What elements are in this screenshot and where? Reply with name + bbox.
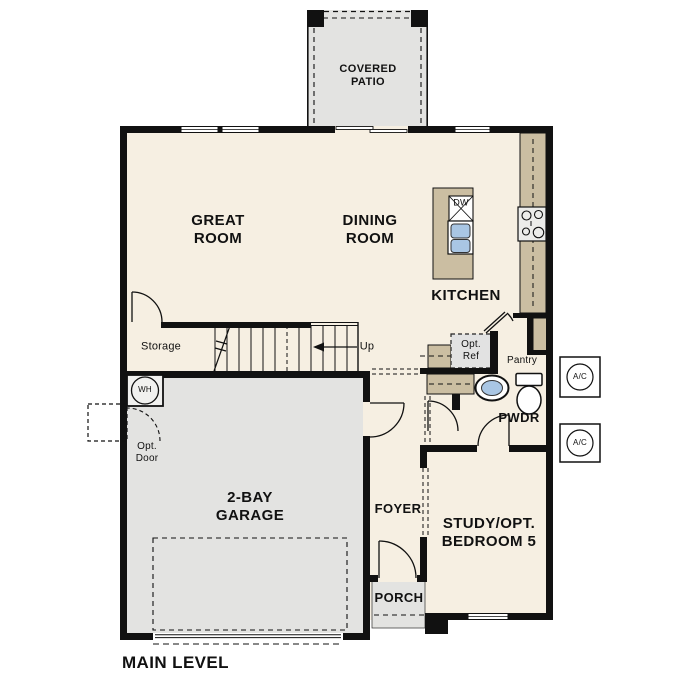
wall-pantry-top: [513, 313, 553, 318]
window-kitchen: [455, 127, 490, 133]
wall-right: [546, 126, 553, 620]
ac-unit-1-label: A/C: [573, 372, 587, 382]
great-room-label: GREAT ROOM: [191, 212, 244, 248]
kitchen-label: KITCHEN: [431, 287, 500, 305]
up-label: Up: [360, 340, 374, 353]
wall-left: [120, 126, 127, 640]
powder-sink: [476, 376, 509, 401]
wall-stub-pantry: [490, 331, 498, 374]
main-level-title: MAIN LEVEL: [122, 653, 229, 673]
toilet: [516, 374, 542, 415]
garage-door: [153, 633, 343, 644]
wall-stairs-top: [161, 322, 311, 328]
garage-label: 2-BAY GARAGE: [216, 489, 284, 525]
floor-plan: COVERED PATIO GREAT ROOM DINING ROOM KIT…: [0, 0, 687, 687]
foyer-label: FOYER: [375, 501, 422, 517]
dining-room-label: DINING ROOM: [343, 212, 398, 248]
cooktop: [518, 207, 546, 241]
dishwasher-label: DW: [453, 198, 468, 209]
opt-ref-label: Opt. Ref: [461, 339, 481, 363]
covered-patio-label: COVERED PATIO: [339, 63, 396, 89]
opt-door-label: Opt. Door: [136, 441, 158, 465]
water-heater-label: WH: [138, 385, 152, 395]
patio-post-right: [411, 10, 428, 27]
powder-label: PWDR: [498, 410, 539, 426]
window-great-room-2: [222, 127, 259, 133]
storage-label: Storage: [141, 340, 181, 353]
sliding-patio-door: [335, 126, 408, 133]
window-study: [468, 614, 508, 620]
pantry-label: Pantry: [507, 355, 537, 367]
window-great-room-1: [181, 127, 218, 133]
island-sink: [448, 221, 473, 254]
floor-plan-drawing: [0, 0, 687, 687]
wall-study-left-top: [420, 452, 427, 468]
ac-unit-2-label: A/C: [573, 438, 587, 448]
wall-pantry-inner-v: [527, 318, 533, 355]
study-label: STUDY/OPT. BEDROOM 5: [442, 515, 536, 551]
pantry-shelf: [533, 318, 547, 351]
wall-kitchen-bottom: [420, 368, 498, 374]
wall-stub-powder: [452, 394, 460, 410]
porch-label: PORCH: [375, 590, 424, 606]
patio-post-left: [307, 10, 324, 27]
wall-corner-block: [425, 613, 448, 634]
